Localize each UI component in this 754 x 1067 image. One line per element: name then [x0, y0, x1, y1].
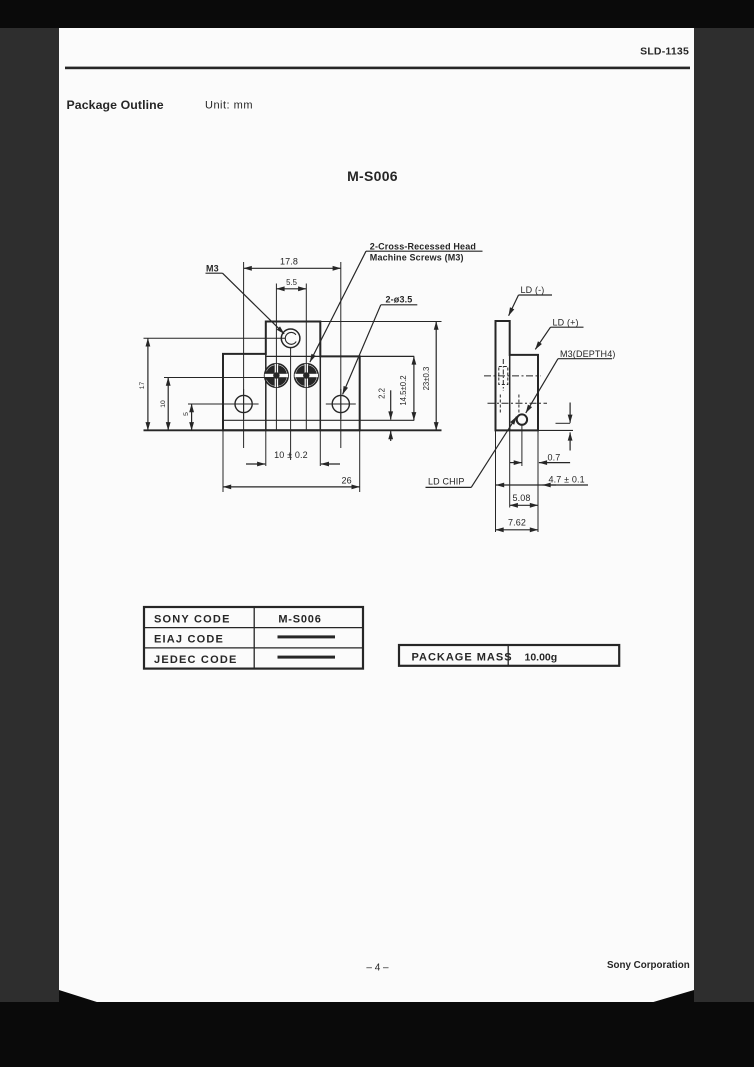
svg-text:10.00g: 10.00g	[525, 652, 558, 664]
svg-text:– 4 –: – 4 –	[366, 963, 389, 974]
svg-text:26: 26	[342, 476, 352, 486]
svg-text:7.62: 7.62	[508, 517, 526, 527]
svg-text:SONY CODE: SONY CODE	[154, 613, 231, 625]
svg-text:Sony Corporation: Sony Corporation	[607, 960, 690, 971]
svg-text:17.8: 17.8	[280, 256, 298, 266]
svg-text:14.5±0.2: 14.5±0.2	[399, 375, 408, 405]
svg-text:5.5: 5.5	[286, 278, 298, 287]
svg-text:2-Cross-Recessed Head: 2-Cross-Recessed Head	[370, 241, 476, 251]
svg-text:EIAJ CODE: EIAJ CODE	[154, 634, 224, 646]
svg-text:2.2: 2.2	[378, 388, 387, 399]
svg-text:JEDEC CODE: JEDEC CODE	[154, 654, 238, 666]
svg-text:M-S006: M-S006	[347, 168, 398, 184]
svg-text:0.7: 0.7	[548, 453, 561, 463]
svg-text:4.7 ± 0.1: 4.7 ± 0.1	[549, 475, 585, 485]
svg-text:Package Outline: Package Outline	[67, 98, 164, 112]
svg-text:LD (+): LD (+)	[553, 317, 579, 327]
svg-text:17: 17	[139, 382, 146, 390]
svg-text:23±0.3: 23±0.3	[422, 367, 431, 391]
svg-text:LD CHIP: LD CHIP	[428, 477, 465, 487]
svg-text:PACKAGE MASS: PACKAGE MASS	[412, 652, 513, 664]
svg-text:5.08: 5.08	[512, 493, 530, 503]
svg-text:10: 10	[160, 400, 167, 408]
svg-text:Unit: mm: Unit: mm	[205, 100, 253, 112]
svg-text:Machine Screws (M3): Machine Screws (M3)	[370, 253, 464, 263]
svg-text:2-ø3.5: 2-ø3.5	[386, 295, 413, 305]
svg-text:M3(DEPTH4): M3(DEPTH4)	[560, 349, 616, 359]
svg-text:M-S006: M-S006	[278, 613, 321, 625]
svg-text:LD (-): LD (-)	[521, 285, 545, 295]
svg-text:SLD-1135: SLD-1135	[640, 46, 689, 58]
svg-text:10 ± 0.2: 10 ± 0.2	[274, 450, 308, 460]
svg-text:M3: M3	[206, 263, 219, 273]
svg-text:5: 5	[183, 412, 190, 416]
